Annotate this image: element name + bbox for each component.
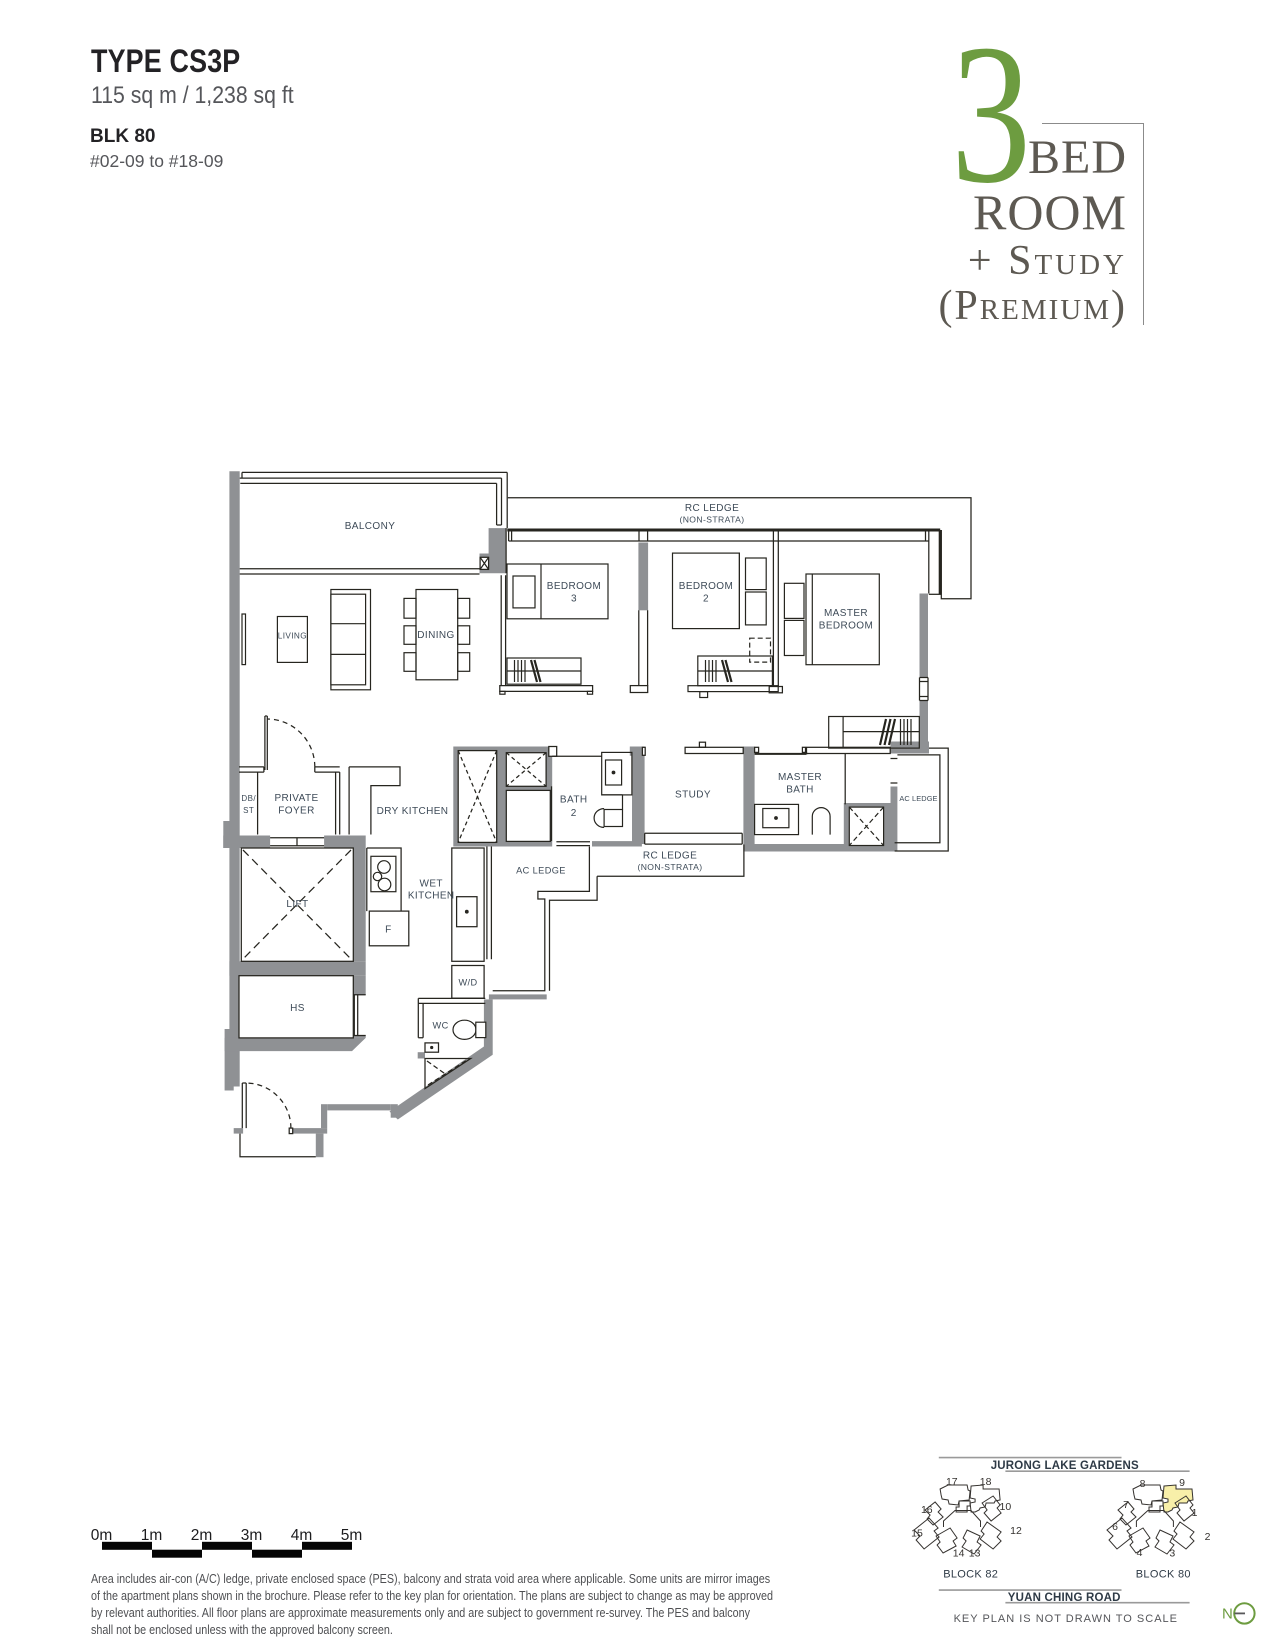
svg-text:LIFT: LIFT — [286, 899, 308, 910]
svg-text:RC LEDGE: RC LEDGE — [643, 851, 697, 862]
svg-text:17: 17 — [946, 1476, 958, 1488]
svg-text:8: 8 — [1140, 1478, 1146, 1490]
svg-text:KEY PLAN IS NOT DRAWN TO SCALE: KEY PLAN IS NOT DRAWN TO SCALE — [954, 1613, 1178, 1625]
svg-text:BATH: BATH — [786, 785, 814, 796]
svg-text:BALCONY: BALCONY — [345, 521, 396, 532]
svg-text:(NON-STRATA): (NON-STRATA) — [637, 862, 702, 872]
svg-text:2: 2 — [703, 594, 709, 605]
svg-text:ST: ST — [243, 806, 254, 815]
svg-text:KITCHEN: KITCHEN — [408, 891, 455, 902]
svg-text:STUDY: STUDY — [675, 790, 711, 801]
svg-text:12: 12 — [1010, 1525, 1022, 1537]
svg-text:(NON-STRATA): (NON-STRATA) — [679, 515, 744, 525]
svg-text:AC LEDGE: AC LEDGE — [899, 794, 937, 803]
svg-text:0m: 0m — [91, 1527, 113, 1544]
svg-text:2: 2 — [1205, 1531, 1211, 1543]
svg-text:10: 10 — [1000, 1501, 1012, 1513]
svg-text:BLOCK 80: BLOCK 80 — [1136, 1569, 1191, 1581]
svg-text:4: 4 — [1137, 1547, 1143, 1559]
svg-text:BEDROOM: BEDROOM — [547, 581, 601, 592]
svg-text:DB/: DB/ — [241, 794, 256, 803]
svg-text:5m: 5m — [341, 1527, 363, 1544]
svg-text:BEDROOM: BEDROOM — [679, 581, 733, 592]
svg-text:4m: 4m — [291, 1527, 313, 1544]
svg-text:LIVING: LIVING — [278, 632, 307, 641]
svg-text:1m: 1m — [141, 1527, 163, 1544]
svg-text:DRY KITCHEN: DRY KITCHEN — [377, 806, 449, 817]
svg-text:F: F — [385, 925, 392, 936]
svg-text:DINING: DINING — [417, 630, 454, 641]
svg-text:BLOCK 82: BLOCK 82 — [943, 1569, 998, 1581]
svg-text:3m: 3m — [241, 1527, 263, 1544]
svg-text:AC LEDGE: AC LEDGE — [516, 866, 566, 876]
svg-text:RC LEDGE: RC LEDGE — [685, 503, 739, 514]
svg-text:2m: 2m — [191, 1527, 213, 1544]
svg-text:BEDROOM: BEDROOM — [819, 621, 873, 632]
svg-text:MASTER: MASTER — [824, 608, 868, 619]
svg-text:9: 9 — [1179, 1477, 1185, 1489]
svg-text:2: 2 — [571, 808, 577, 819]
svg-text:YUAN CHING ROAD: YUAN CHING ROAD — [1008, 1592, 1121, 1604]
svg-text:N: N — [1222, 1606, 1233, 1623]
svg-text:3: 3 — [571, 594, 577, 605]
svg-text:BATH: BATH — [560, 795, 588, 806]
svg-text:1: 1 — [1192, 1507, 1198, 1519]
svg-text:14: 14 — [953, 1548, 965, 1560]
svg-text:15: 15 — [911, 1528, 923, 1540]
svg-text:W/D: W/D — [458, 978, 477, 988]
svg-text:3: 3 — [1169, 1548, 1175, 1560]
svg-text:HS: HS — [290, 1003, 305, 1014]
svg-text:WC: WC — [433, 1021, 449, 1031]
svg-text:16: 16 — [921, 1504, 933, 1516]
svg-text:MASTER: MASTER — [778, 772, 822, 783]
svg-text:JURONG LAKE GARDENS: JURONG LAKE GARDENS — [991, 1460, 1139, 1472]
svg-text:6: 6 — [1112, 1521, 1118, 1533]
svg-text:13: 13 — [969, 1548, 981, 1560]
svg-text:PRIVATE: PRIVATE — [274, 793, 318, 804]
svg-text:WET: WET — [419, 879, 442, 890]
svg-text:FOYER: FOYER — [278, 806, 314, 817]
svg-text:7: 7 — [1123, 1499, 1129, 1511]
svg-text:18: 18 — [980, 1476, 992, 1488]
